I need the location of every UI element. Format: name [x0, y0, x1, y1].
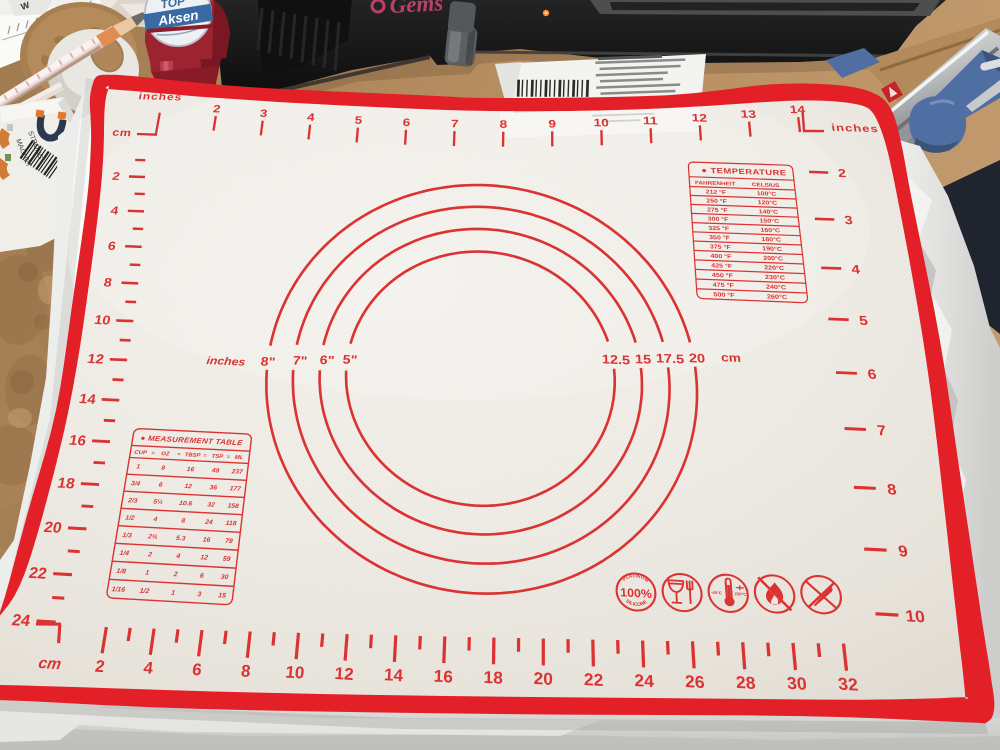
svg-text:TSP: TSP: [211, 454, 223, 460]
svg-text:16: 16: [202, 537, 211, 544]
svg-text:475 °F: 475 °F: [712, 281, 734, 289]
svg-text:12: 12: [184, 483, 193, 490]
svg-text:1/3: 1/3: [122, 532, 133, 539]
svg-text:24: 24: [10, 611, 32, 630]
svg-text:Gems: Gems: [389, 0, 444, 18]
svg-text:cm: cm: [721, 350, 742, 365]
svg-text:5: 5: [354, 114, 363, 127]
svg-text:inches: inches: [138, 91, 183, 103]
svg-text:190°C: 190°C: [762, 245, 783, 253]
svg-text:3/4: 3/4: [130, 480, 141, 487]
svg-text:32: 32: [837, 674, 859, 695]
svg-text:8: 8: [499, 118, 507, 130]
svg-text:30: 30: [220, 574, 229, 581]
svg-text:8: 8: [240, 661, 251, 681]
svg-text:8": 8": [260, 354, 276, 369]
svg-text:10: 10: [285, 662, 306, 682]
svg-text:10: 10: [904, 607, 926, 626]
svg-text:10.6: 10.6: [179, 500, 193, 507]
svg-text:375 °F: 375 °F: [710, 243, 731, 251]
svg-text:7: 7: [451, 118, 459, 131]
svg-text:12.5: 12.5: [602, 352, 631, 367]
svg-text:7": 7": [292, 353, 308, 368]
svg-text:1/16: 1/16: [111, 586, 126, 594]
svg-text:158: 158: [227, 503, 239, 510]
svg-text:6: 6: [867, 368, 878, 383]
svg-text:400 °F: 400 °F: [710, 252, 732, 260]
svg-text:12: 12: [86, 351, 105, 367]
svg-text:30: 30: [786, 673, 808, 694]
svg-text:350 °F: 350 °F: [709, 234, 730, 242]
svg-text:260°C: 260°C: [767, 293, 788, 301]
svg-text:79: 79: [225, 538, 234, 545]
svg-text:14: 14: [384, 665, 405, 685]
svg-text:18: 18: [56, 475, 76, 492]
svg-text:18: 18: [483, 667, 503, 688]
svg-text:4: 4: [306, 111, 315, 124]
svg-text:1/4: 1/4: [119, 550, 130, 557]
svg-text:10: 10: [593, 116, 609, 129]
svg-text:1/2: 1/2: [125, 515, 136, 522]
svg-text:OZ: OZ: [161, 451, 171, 457]
svg-text:5: 5: [858, 314, 869, 329]
svg-text:2⅔: 2⅔: [146, 533, 158, 540]
svg-text:48: 48: [210, 467, 220, 474]
svg-text:230°C: 230°C: [734, 591, 746, 597]
svg-text:14: 14: [78, 392, 97, 408]
svg-text:32: 32: [207, 501, 216, 508]
svg-text:22: 22: [27, 565, 48, 583]
svg-text:140°C: 140°C: [758, 208, 779, 216]
svg-text:120°C: 120°C: [757, 199, 778, 207]
svg-text:20: 20: [534, 668, 553, 689]
svg-text:10: 10: [93, 313, 112, 328]
svg-text:160°C: 160°C: [760, 226, 781, 234]
svg-text:20: 20: [688, 351, 706, 366]
svg-text:1/8: 1/8: [116, 568, 127, 575]
svg-text:17.5: 17.5: [655, 351, 684, 366]
svg-text:100°C: 100°C: [756, 190, 777, 198]
svg-text:250 °F: 250 °F: [706, 197, 727, 205]
svg-text:24: 24: [634, 670, 655, 691]
svg-text:200°C: 200°C: [763, 254, 784, 262]
svg-text:177: 177: [229, 485, 241, 492]
svg-text:240°C: 240°C: [766, 283, 787, 291]
svg-text:230°C: 230°C: [765, 273, 786, 281]
svg-text:237: 237: [230, 468, 243, 475]
svg-text:300 °F: 300 °F: [707, 215, 728, 223]
svg-text:9: 9: [548, 118, 556, 130]
svg-text:cm: cm: [37, 655, 63, 673]
svg-text:13: 13: [740, 108, 757, 121]
svg-text:5⅓: 5⅓: [153, 499, 164, 506]
svg-text:220°C: 220°C: [764, 264, 785, 272]
svg-text:-40°C: -40°C: [711, 590, 722, 595]
svg-text:275 °F: 275 °F: [707, 206, 728, 214]
svg-text:16: 16: [68, 433, 88, 449]
svg-text:500 °F: 500 °F: [713, 291, 735, 299]
svg-text:6: 6: [402, 116, 411, 129]
svg-text:180°C: 180°C: [761, 236, 782, 244]
svg-text:59: 59: [222, 556, 231, 563]
svg-text:inches: inches: [206, 355, 247, 369]
svg-text:28: 28: [735, 672, 756, 693]
svg-text:CELSIUS: CELSIUS: [752, 183, 780, 189]
svg-text:6": 6": [319, 353, 335, 368]
svg-text:12: 12: [200, 554, 209, 561]
svg-text:20: 20: [43, 519, 64, 536]
svg-text:212 °F: 212 °F: [706, 189, 727, 196]
svg-text:15: 15: [218, 592, 227, 599]
svg-text:5": 5": [342, 352, 358, 367]
svg-text:11: 11: [643, 115, 658, 128]
svg-text:2/3: 2/3: [126, 497, 138, 504]
svg-text:inches: inches: [831, 122, 880, 135]
svg-text:118: 118: [225, 520, 237, 527]
svg-text:150°C: 150°C: [759, 217, 780, 225]
svg-text:22: 22: [584, 669, 604, 690]
svg-text:425 °F: 425 °F: [711, 262, 733, 270]
svg-text:325 °F: 325 °F: [708, 224, 729, 232]
svg-text:2: 2: [837, 166, 847, 179]
svg-text:5.3: 5.3: [175, 535, 186, 542]
svg-text:24: 24: [204, 519, 214, 526]
svg-text:1/2: 1/2: [139, 588, 150, 595]
svg-text:CUP: CUP: [134, 450, 147, 456]
svg-text:16: 16: [186, 466, 195, 473]
svg-text:100%: 100%: [620, 585, 652, 600]
svg-text:12: 12: [334, 664, 354, 684]
svg-text:15: 15: [635, 352, 652, 367]
svg-text:26: 26: [684, 671, 705, 692]
svg-text:cm: cm: [111, 128, 132, 139]
svg-text:TBSP: TBSP: [184, 452, 201, 459]
svg-text:16: 16: [433, 666, 453, 687]
svg-text:ML: ML: [234, 455, 244, 461]
svg-text:12: 12: [691, 112, 707, 125]
svg-text:450 °F: 450 °F: [712, 271, 734, 279]
svg-text:36: 36: [209, 484, 218, 491]
